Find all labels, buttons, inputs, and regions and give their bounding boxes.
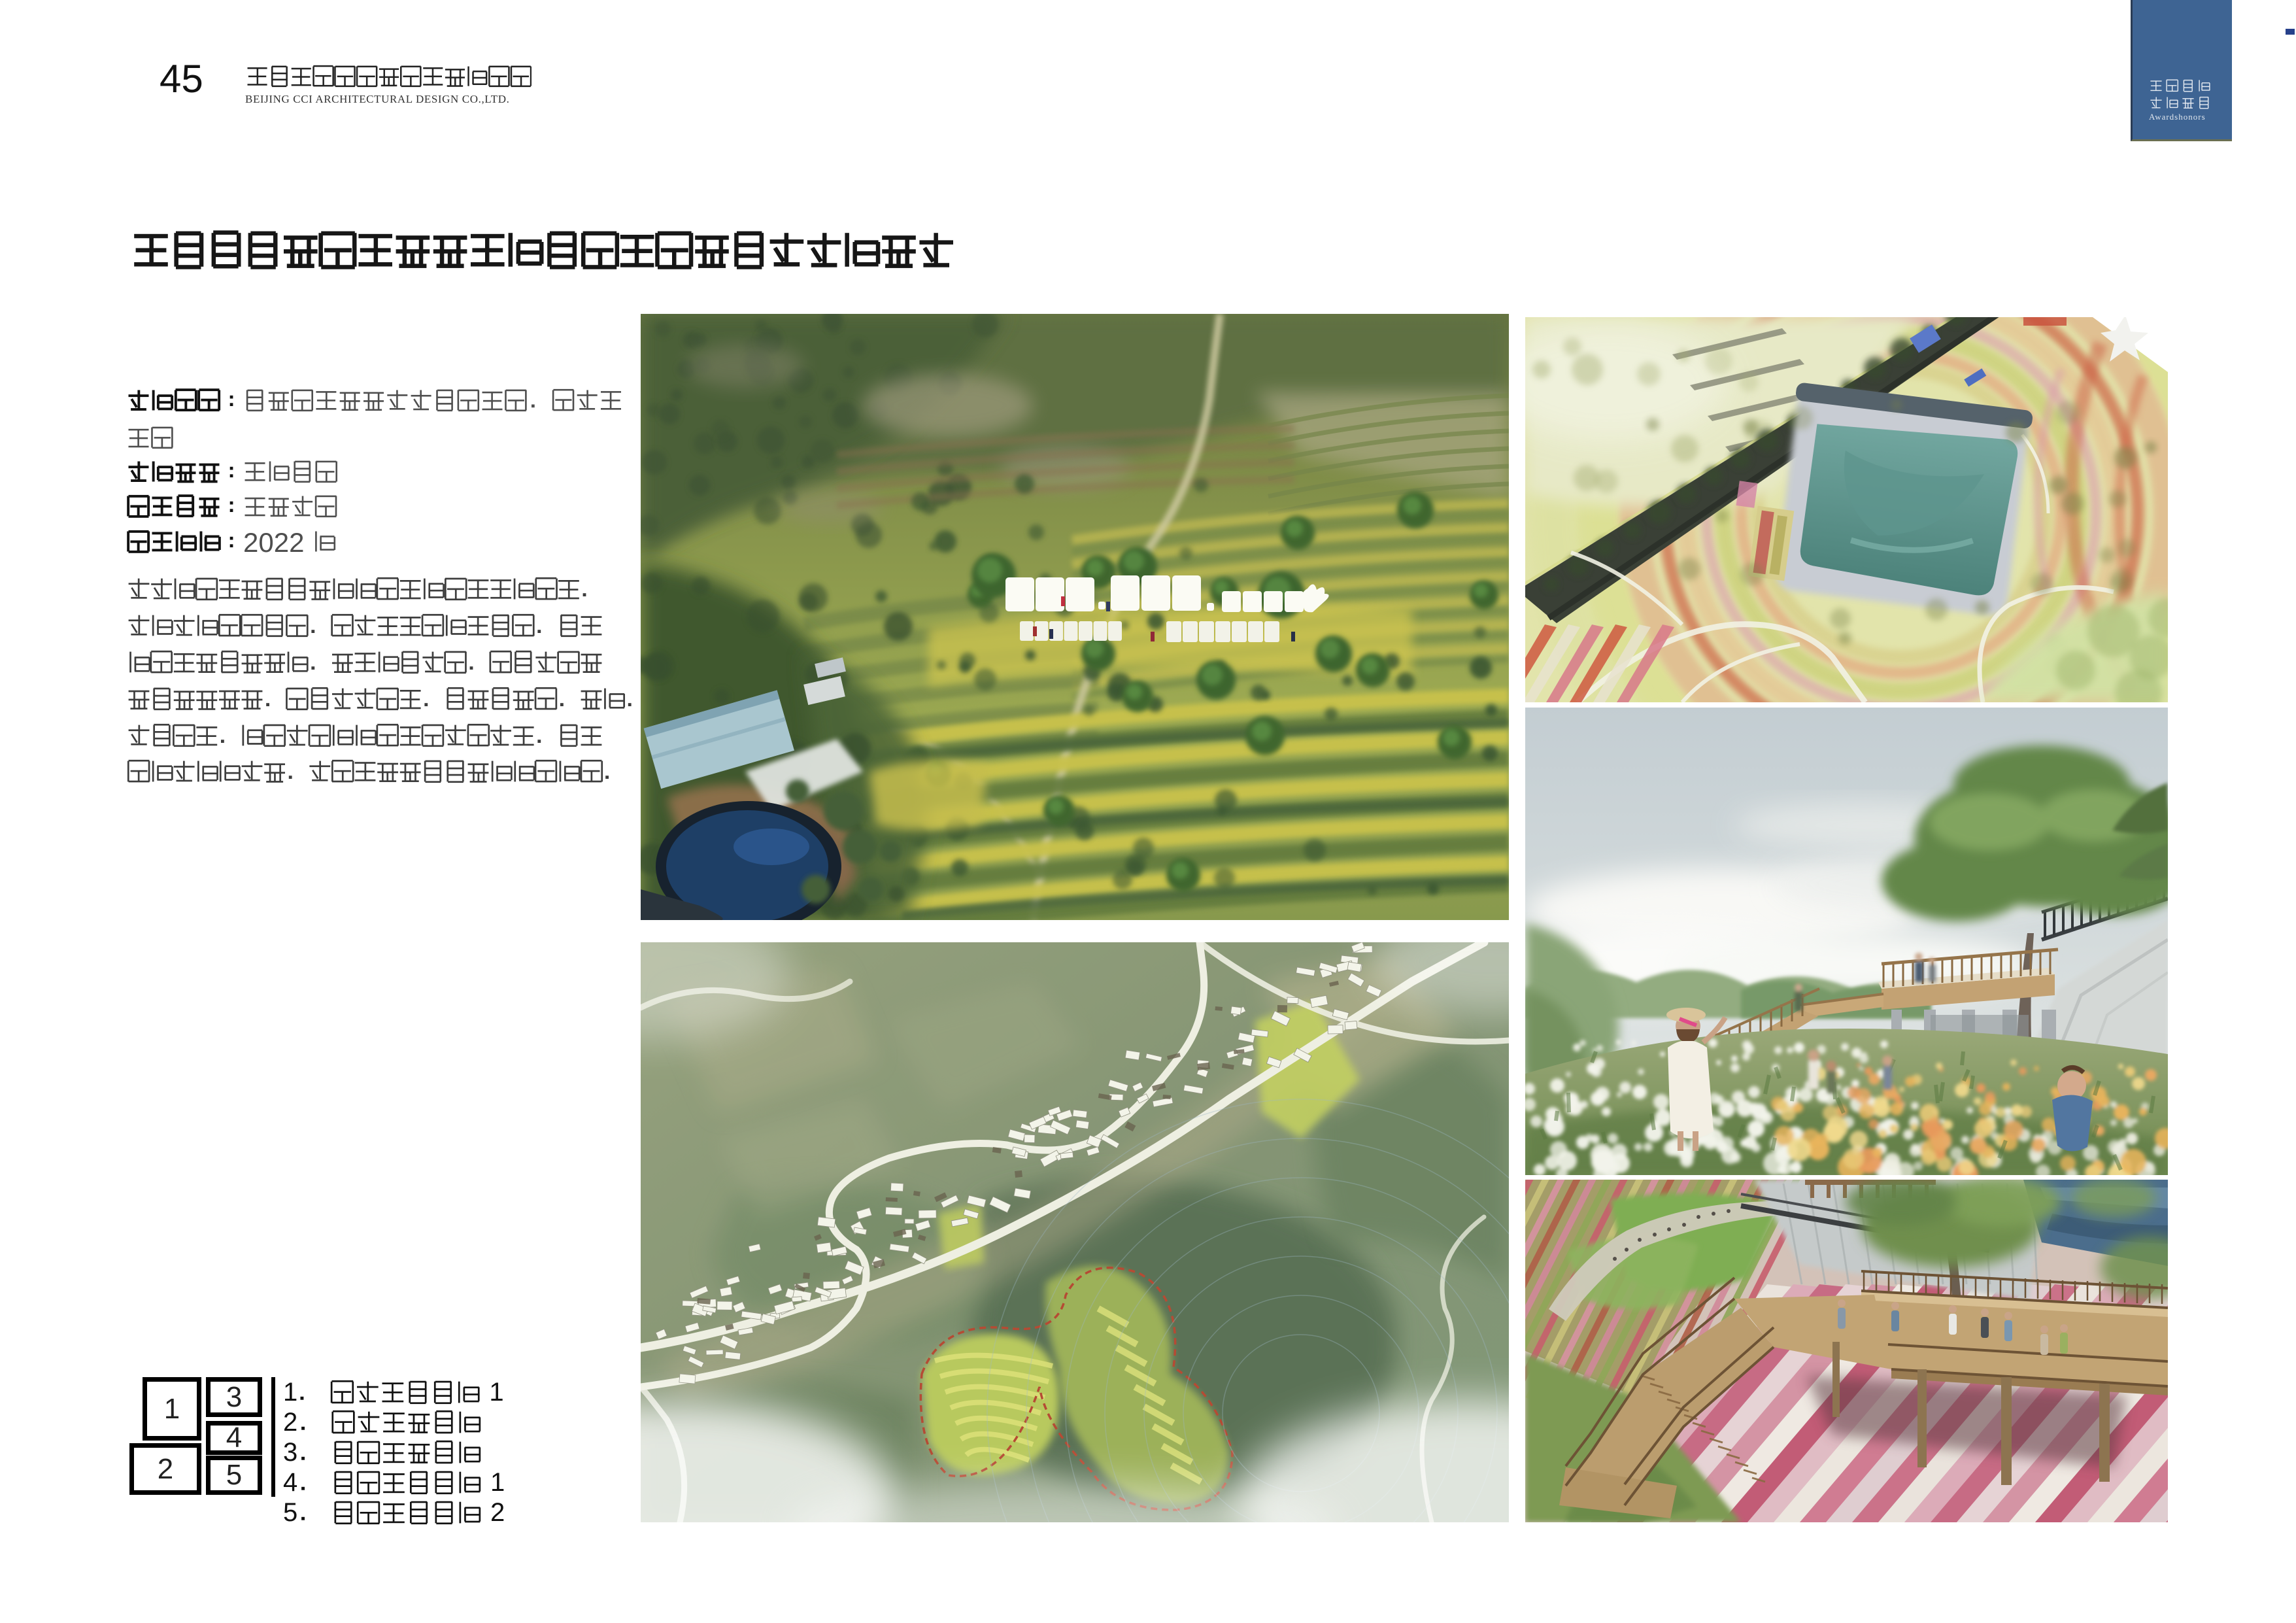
svg-text:5: 5 bbox=[283, 1500, 297, 1527]
svg-text:3: 3 bbox=[283, 1440, 297, 1467]
svg-text:1: 1 bbox=[490, 1470, 504, 1497]
svg-text:4: 4 bbox=[283, 1470, 297, 1497]
svg-text:1: 1 bbox=[283, 1380, 297, 1407]
svg-text:1: 1 bbox=[489, 1380, 503, 1407]
svg-text:2: 2 bbox=[283, 1410, 297, 1437]
svg-text:2: 2 bbox=[490, 1500, 505, 1527]
